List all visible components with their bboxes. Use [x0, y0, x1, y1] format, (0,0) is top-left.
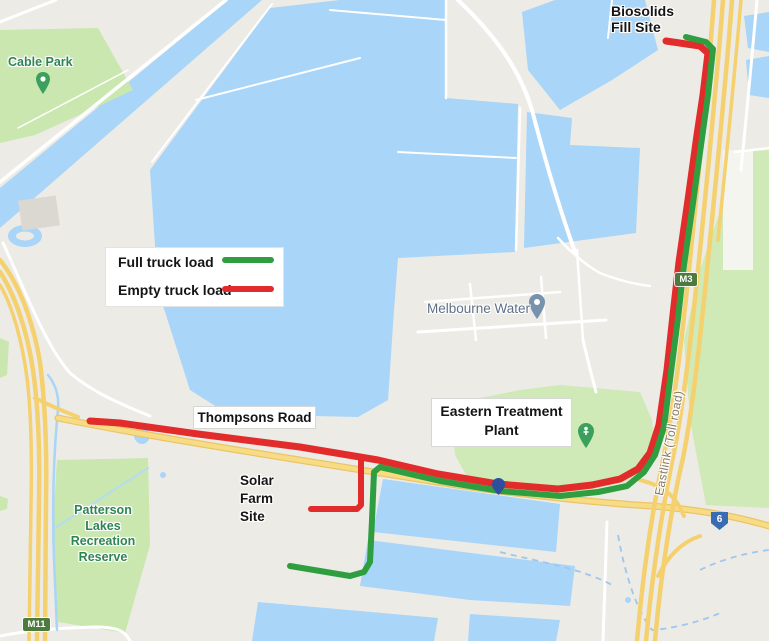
building: [18, 196, 60, 231]
thompsons-road-label: Thompsons Road: [193, 406, 316, 429]
eastern-treatment-plant-label: Eastern Treatment Plant: [431, 398, 572, 447]
map-graphics: [0, 0, 769, 641]
legend-box: Full truck load Empty truck load: [105, 247, 284, 307]
legend-empty-truck-swatch: [222, 286, 274, 292]
cleared-strip: [723, 150, 753, 270]
legend-empty-truck-label: Empty truck load: [118, 282, 232, 298]
m11-route-badge: M11: [23, 618, 50, 631]
water-hook-center: [16, 232, 34, 241]
legend-full-truck-label: Full truck load: [118, 254, 214, 270]
map-canvas[interactable]: Biosolids Fill Site Cable Park Melbourne…: [0, 0, 769, 641]
legend-full-truck-swatch: [222, 257, 274, 263]
m3-route-badge: M3: [675, 273, 697, 286]
